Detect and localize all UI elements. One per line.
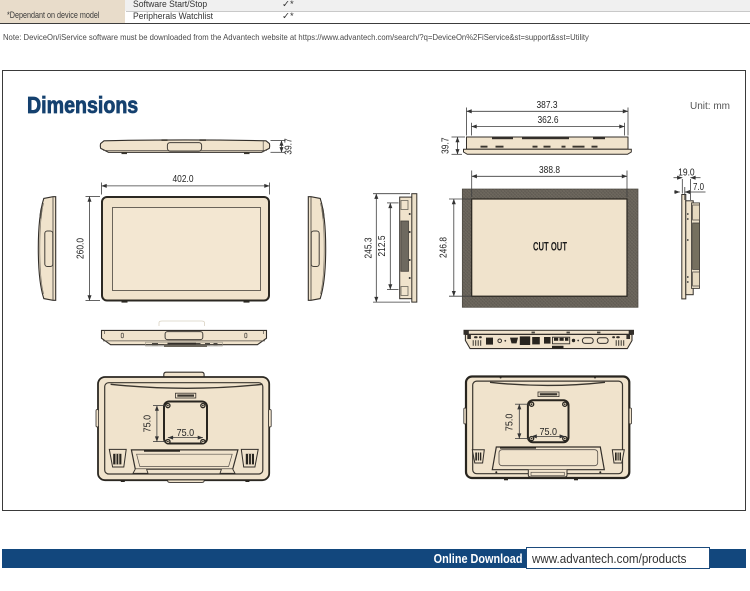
svg-text:246.8: 246.8 [438, 237, 450, 258]
svg-text:75.0: 75.0 [504, 414, 516, 432]
svg-text:75.0: 75.0 [142, 415, 154, 433]
svg-text:75.0: 75.0 [177, 427, 195, 439]
svg-text:387.3: 387.3 [537, 99, 558, 111]
svg-text:19.0: 19.0 [678, 167, 695, 178]
svg-text:362.6: 362.6 [538, 114, 559, 126]
svg-text:212.5: 212.5 [376, 235, 388, 256]
svg-text:39.7: 39.7 [284, 138, 295, 155]
svg-text:75.0: 75.0 [539, 426, 557, 438]
svg-text:388.8: 388.8 [539, 164, 560, 176]
svg-text:245.3: 245.3 [362, 237, 374, 258]
svg-text:CUT OUT: CUT OUT [533, 242, 567, 254]
svg-text:260.0: 260.0 [75, 238, 87, 259]
svg-text:7.0: 7.0 [693, 182, 704, 193]
svg-text:39.7: 39.7 [441, 137, 452, 154]
svg-text:402.0: 402.0 [173, 173, 194, 185]
